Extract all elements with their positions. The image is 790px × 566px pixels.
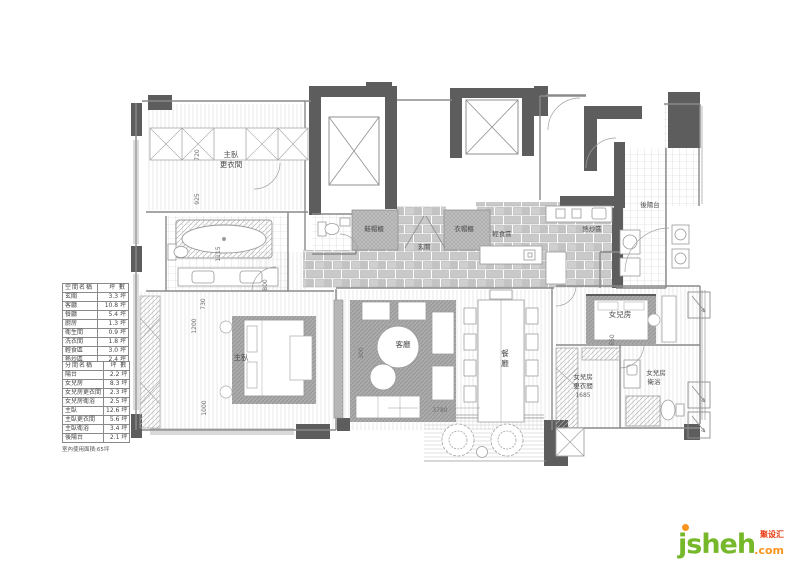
space-table-col-area: 坪 數 — [98, 284, 129, 293]
table-row: 陽台2.2 坪 — [63, 371, 130, 380]
floor-plan-page: 主臥 更衣間 主臥 客廳 餐 廳 玄關 鞋帽櫃 衣帽櫃 輕食區 熱炒區 後陽台 … — [0, 0, 790, 566]
cell-area: 1.8 坪 — [98, 338, 129, 347]
cell-area: 5.4 坪 — [98, 311, 129, 320]
table-row: 後陽台2.1 坪 — [63, 434, 130, 443]
stair-shaft — [466, 100, 518, 154]
elevator-shaft — [329, 117, 379, 185]
label-hot-cooking-area: 熱炒區 — [582, 224, 602, 233]
rooms-table-col-name: 分間名稱 — [63, 362, 104, 371]
label-daughter-closet-dim: 1685 — [575, 392, 590, 399]
cell-name: 玄關 — [63, 293, 98, 302]
cell-name: 女兒房衛浴 — [63, 398, 104, 407]
cell-area: 1.3 坪 — [98, 320, 129, 329]
cell-area: 2.3 坪 — [104, 389, 130, 398]
table-row: 客廳10.8 坪 — [63, 302, 129, 311]
jsheh-logo: jsheh 聚设汇 .com — [678, 520, 786, 560]
cell-area: 3.4 坪 — [104, 425, 130, 434]
cell-name: 主臥 — [63, 407, 104, 416]
table-header-row: 分間名稱 坪 數 — [63, 362, 130, 371]
label-master-closet-line1: 主臥 — [224, 149, 239, 159]
master-wardrobe — [140, 296, 160, 428]
table-header-row: 空間名稱 坪 數 — [63, 284, 129, 293]
table-row: 輕食區3.0 坪 — [63, 347, 129, 356]
label-daughter-bath-line1: 女兒房 — [646, 368, 666, 377]
dim-650: 650 — [609, 334, 616, 346]
cell-area: 10.8 坪 — [98, 302, 129, 311]
label-daughter-closet-line2: 更衣間 — [573, 381, 593, 390]
space-area-table: 空間名稱 坪 數 玄關3.3 坪 客廳10.8 坪 餐廳5.4 坪 廚房1.3 … — [62, 283, 129, 365]
cell-area: 3.3 坪 — [98, 293, 129, 302]
label-coat-cabinet: 衣帽櫃 — [454, 224, 474, 233]
table-row: 女兒房衛浴2.5 坪 — [63, 398, 130, 407]
table-row: 主臥衛浴3.4 坪 — [63, 425, 130, 434]
cell-name: 女兒房 — [63, 380, 104, 389]
cell-name: 女兒房更衣間 — [63, 389, 104, 398]
label-dining-char2: 廳 — [501, 358, 509, 368]
cell-name: 主臥衛浴 — [63, 425, 104, 434]
table-row: 玄關3.3 坪 — [63, 293, 129, 302]
cell-name: 洗衣間 — [63, 338, 98, 347]
daughter-bed — [586, 296, 676, 344]
logo-tld-text: .com — [754, 544, 784, 557]
logo-brand-text: jsheh — [678, 531, 755, 558]
label-daughter-closet-line1: 女兒房 — [573, 372, 593, 381]
cell-name: 客廳 — [63, 302, 98, 311]
cell-name: 廚房 — [63, 320, 98, 329]
label-light-meal-area: 輕食區 — [492, 229, 512, 238]
dim-1200: 1200 — [191, 318, 198, 333]
label-daughter-room: 女兒房 — [609, 309, 632, 319]
tv-wall — [334, 300, 343, 418]
room-area-table: 分間名稱 坪 數 陽台2.2 坪 女兒房8.3 坪 女兒房更衣間2.3 坪 女兒… — [62, 361, 130, 443]
rooms-table-col-area: 坪 數 — [104, 362, 130, 371]
table-row: 洗衣間1.8 坪 — [63, 338, 129, 347]
table-row: 女兒房更衣間2.3 坪 — [63, 389, 130, 398]
table-row: 餐廳5.4 坪 — [63, 311, 129, 320]
usable-area-note: 室內使用面積:65坪 — [62, 445, 109, 453]
cell-name: 衛生間 — [63, 329, 98, 338]
label-daughter-bath-line2: 衛浴 — [648, 377, 662, 386]
table-row: 廚房1.3 坪 — [63, 320, 129, 329]
table-row: 主臥12.6 坪 — [63, 407, 130, 416]
label-back-balcony: 後陽台 — [640, 200, 660, 209]
dim-925: 925 — [194, 193, 201, 205]
dim-1000: 1000 — [201, 400, 208, 415]
cell-area: 5.6 坪 — [104, 416, 130, 425]
label-master-closet-line2: 更衣間 — [220, 159, 243, 169]
dim-720: 720 — [194, 149, 201, 161]
space-table-col-name: 空間名稱 — [63, 284, 98, 293]
label-dining-char1: 餐 — [501, 349, 509, 358]
cell-area: 2.5 坪 — [104, 398, 130, 407]
logo-chinese-text: 聚设汇 — [760, 529, 784, 540]
cell-name: 陽台 — [63, 371, 104, 380]
label-shoe-cabinet: 鞋帽櫃 — [364, 224, 384, 233]
cell-area: 2.1 坪 — [104, 434, 130, 443]
cell-name: 主臥更衣間 — [63, 416, 104, 425]
kitchen-island — [480, 246, 542, 264]
cell-area: 0.9 坪 — [98, 329, 129, 338]
table-row: 主臥更衣間5.6 坪 — [63, 416, 130, 425]
dim-1115: 1115 — [215, 246, 222, 261]
cell-name: 輕食區 — [63, 347, 98, 356]
dim-730: 730 — [200, 298, 207, 310]
table-row: 衛生間0.9 坪 — [63, 329, 129, 338]
living-room-set — [350, 300, 456, 422]
logo-j-dot-icon — [682, 524, 689, 531]
label-master-bedroom: 主臥 — [234, 352, 249, 362]
front-balcony-plants — [442, 424, 584, 458]
cell-area: 8.3 坪 — [104, 380, 130, 389]
cell-area: 3.0 坪 — [98, 347, 129, 356]
dim-800: 800 — [262, 279, 269, 291]
master-bathtub — [176, 220, 272, 258]
label-living-room: 客廳 — [396, 339, 411, 349]
cell-area: 2.2 坪 — [104, 371, 130, 380]
label-entry: 玄關 — [418, 242, 431, 251]
dim-3780: 3780 — [432, 407, 447, 414]
cell-area: 12.6 坪 — [104, 407, 130, 416]
cell-name: 後陽台 — [63, 434, 104, 443]
table-row: 女兒房8.3 坪 — [63, 380, 130, 389]
cell-name: 餐廳 — [63, 311, 98, 320]
dim-300: 300 — [358, 347, 365, 359]
